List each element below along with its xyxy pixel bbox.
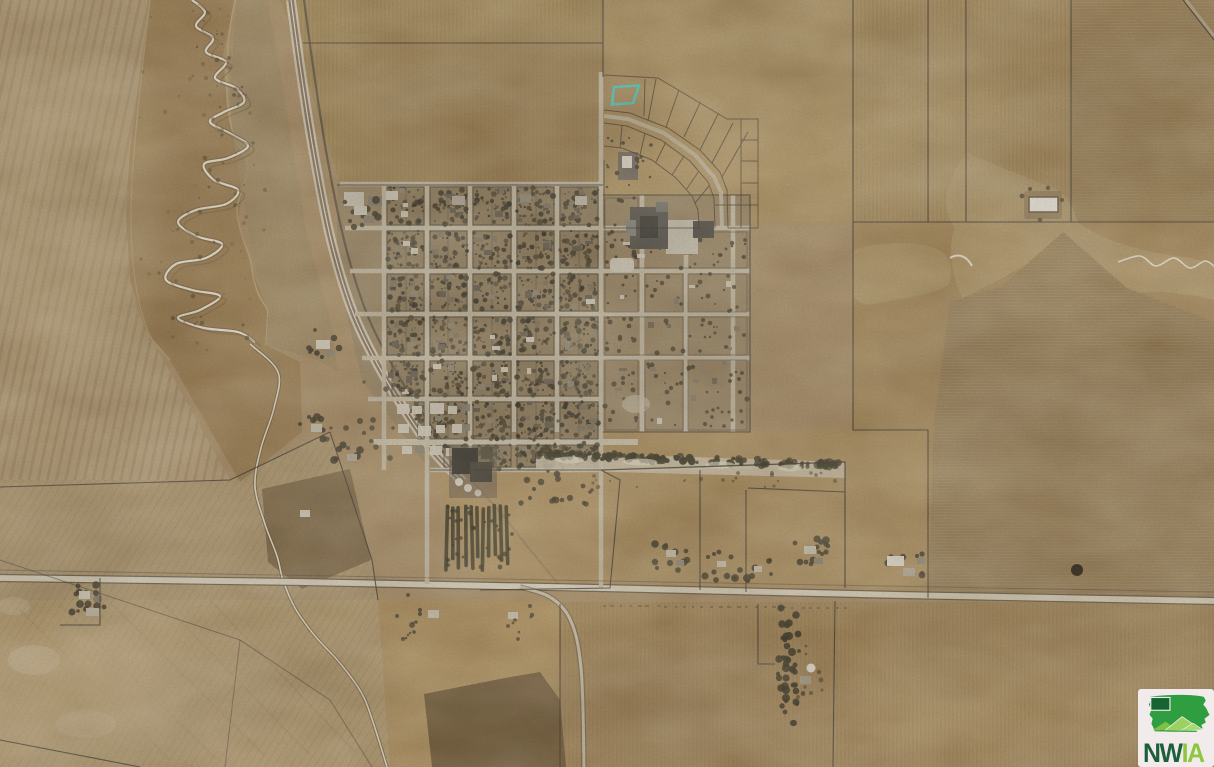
svg-text:NWIA: NWIA	[1143, 739, 1205, 767]
